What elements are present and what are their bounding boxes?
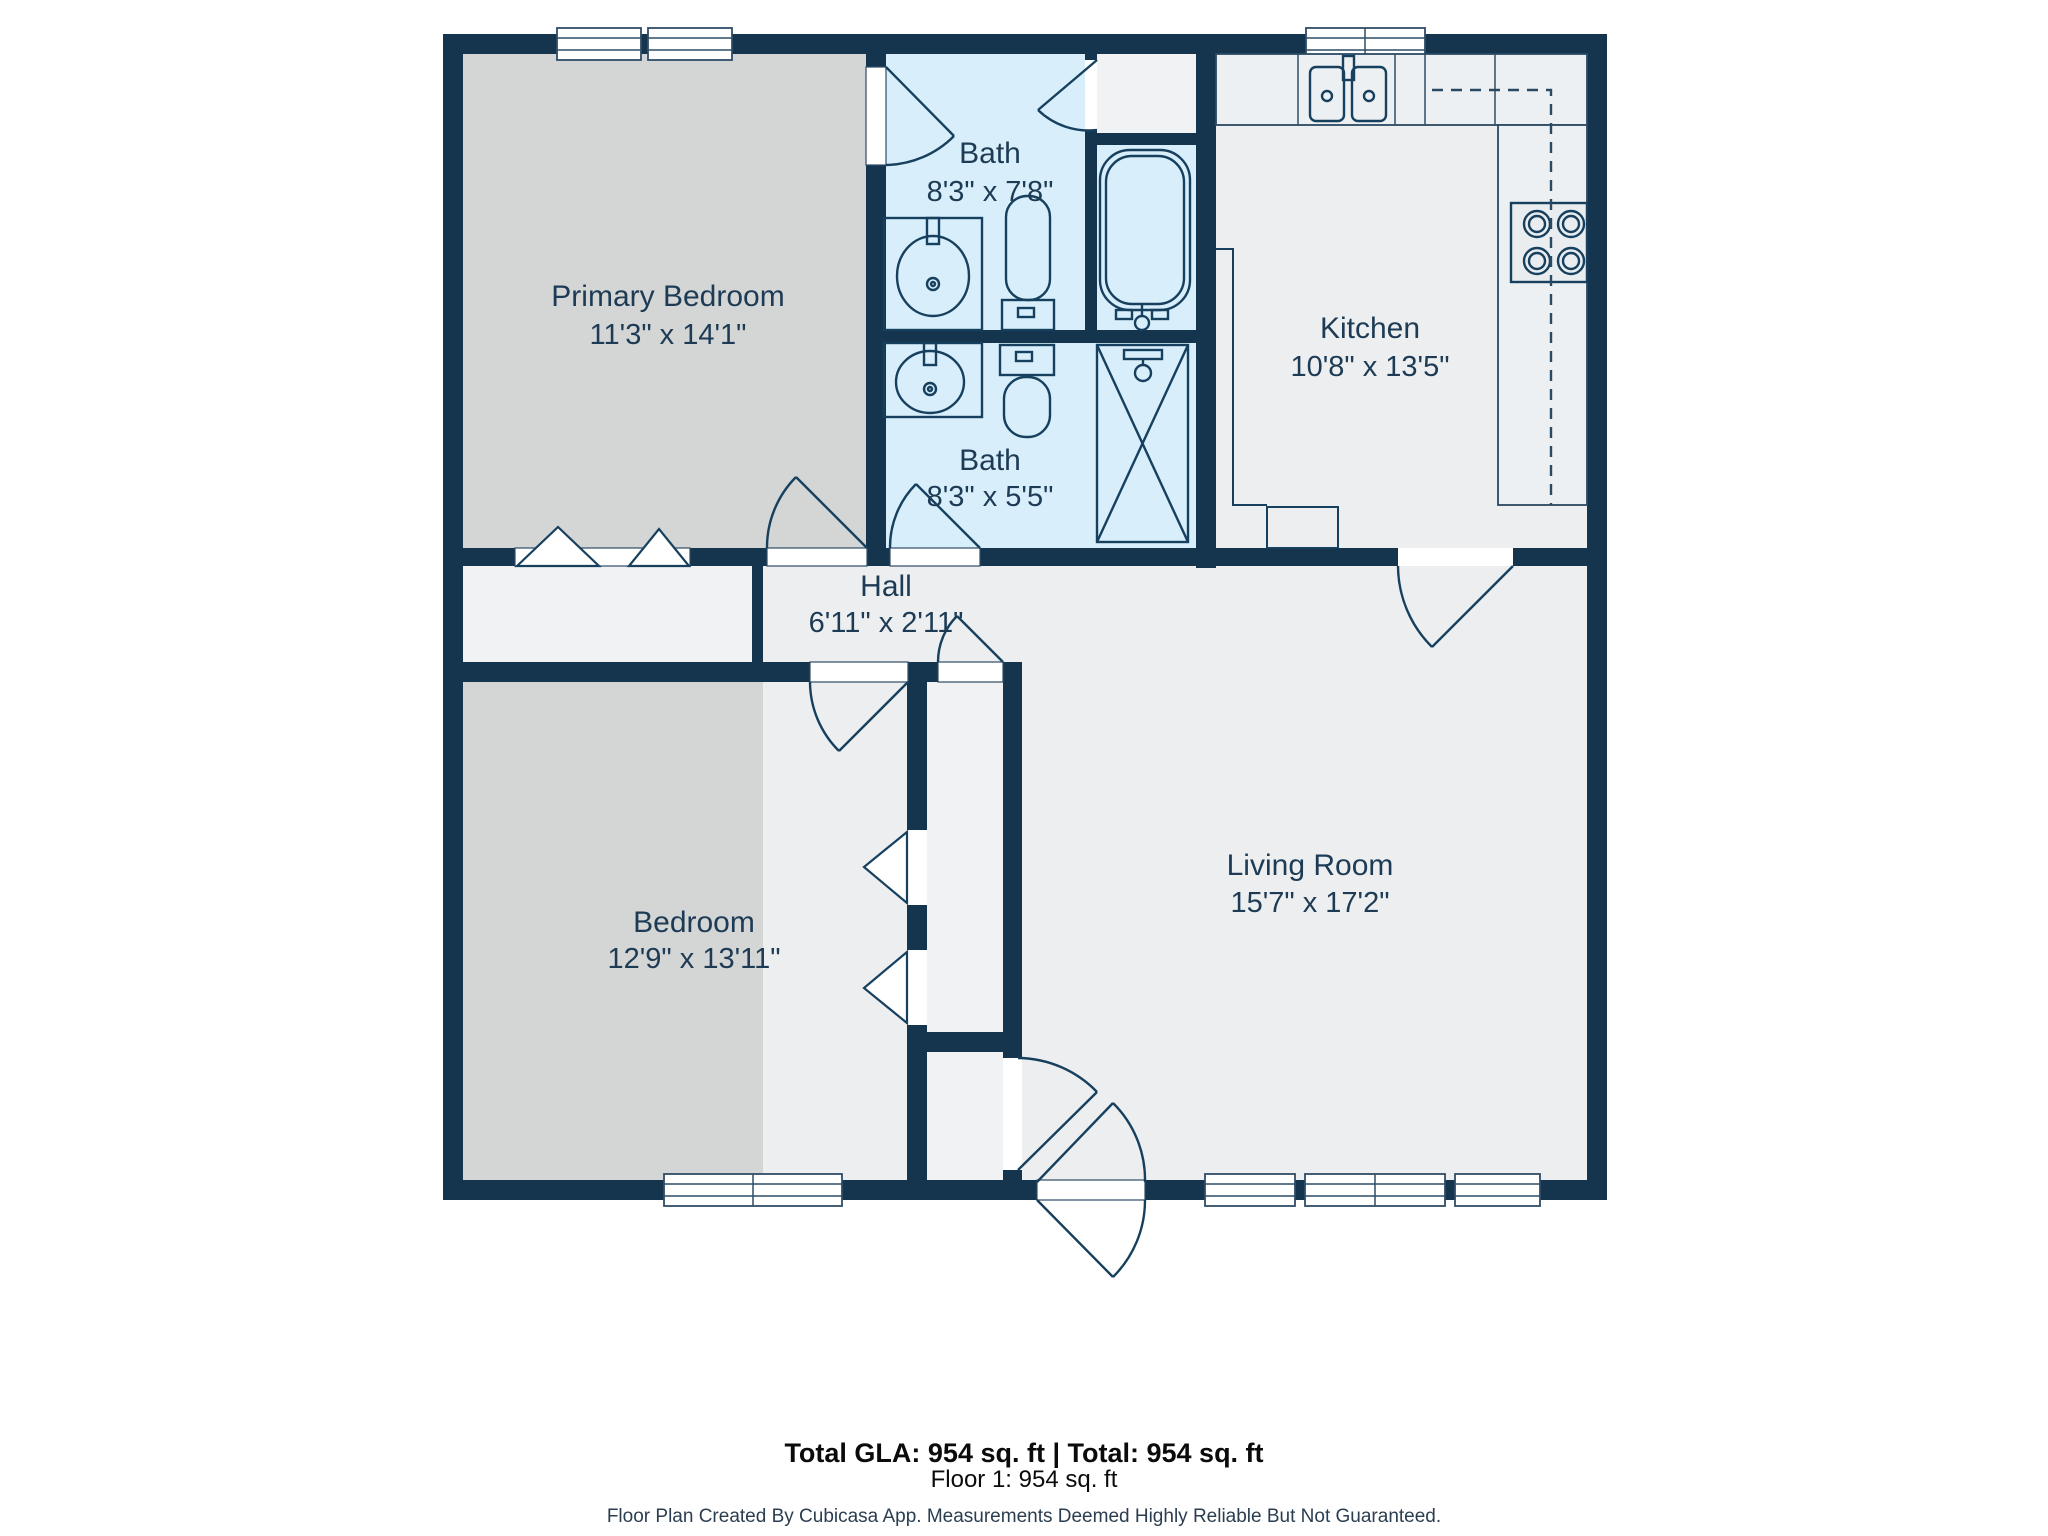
- living-room-dims: 15'7" x 17'2": [1230, 887, 1389, 919]
- kitchen-label: Kitchen: [1320, 312, 1420, 345]
- window-icon: [1205, 1174, 1295, 1206]
- footer-total-gla: Total GLA: 954 sq. ft | Total: 954 sq. f…: [0, 1438, 2048, 1469]
- floor-plan-svg: Primary Bedroom 11'3" x 14'1" Bath 8'3" …: [0, 0, 2048, 1536]
- bath2-dims: 8'3" x 5'5": [927, 481, 1054, 513]
- bath1-label: Bath: [959, 137, 1021, 170]
- bath2-floor: [886, 343, 1196, 548]
- footer-disclaimer: Floor Plan Created By Cubicasa App. Meas…: [0, 1506, 2048, 1528]
- stove-icon: [1511, 203, 1587, 282]
- window-icon: [648, 28, 732, 60]
- primary-bedroom-dims: 11'3" x 14'1": [590, 319, 747, 351]
- footer-floor-area: Floor 1: 954 sq. ft: [0, 1466, 2048, 1494]
- entry-closet-floor: [927, 682, 1003, 1180]
- room-floors: [463, 54, 1587, 1180]
- window-icon: [557, 28, 641, 60]
- hall-label: Hall: [860, 570, 912, 603]
- door-swing-icon: [1037, 1200, 1145, 1277]
- bath-closet-floor: [1097, 54, 1196, 133]
- bedroom-label: Bedroom: [633, 906, 755, 939]
- kitchen-counter-right: [1498, 125, 1587, 505]
- bath2-label: Bath: [959, 444, 1021, 477]
- window-icon: [1455, 1174, 1540, 1206]
- bath1-dims: 8'3" x 7'8": [927, 176, 1054, 208]
- bedroom-dims: 12'9" x 13'11": [607, 943, 780, 975]
- window-icon: [1305, 1174, 1445, 1206]
- floor-plan: Primary Bedroom 11'3" x 14'1" Bath 8'3" …: [0, 0, 2048, 1536]
- hall-dims: 6'11" x 2'11": [809, 607, 964, 639]
- primary-bedroom-label: Primary Bedroom: [551, 280, 784, 313]
- kitchen-dims: 10'8" x 13'5": [1290, 351, 1449, 383]
- window-icon: [664, 1174, 842, 1206]
- living-room-label: Living Room: [1227, 849, 1394, 882]
